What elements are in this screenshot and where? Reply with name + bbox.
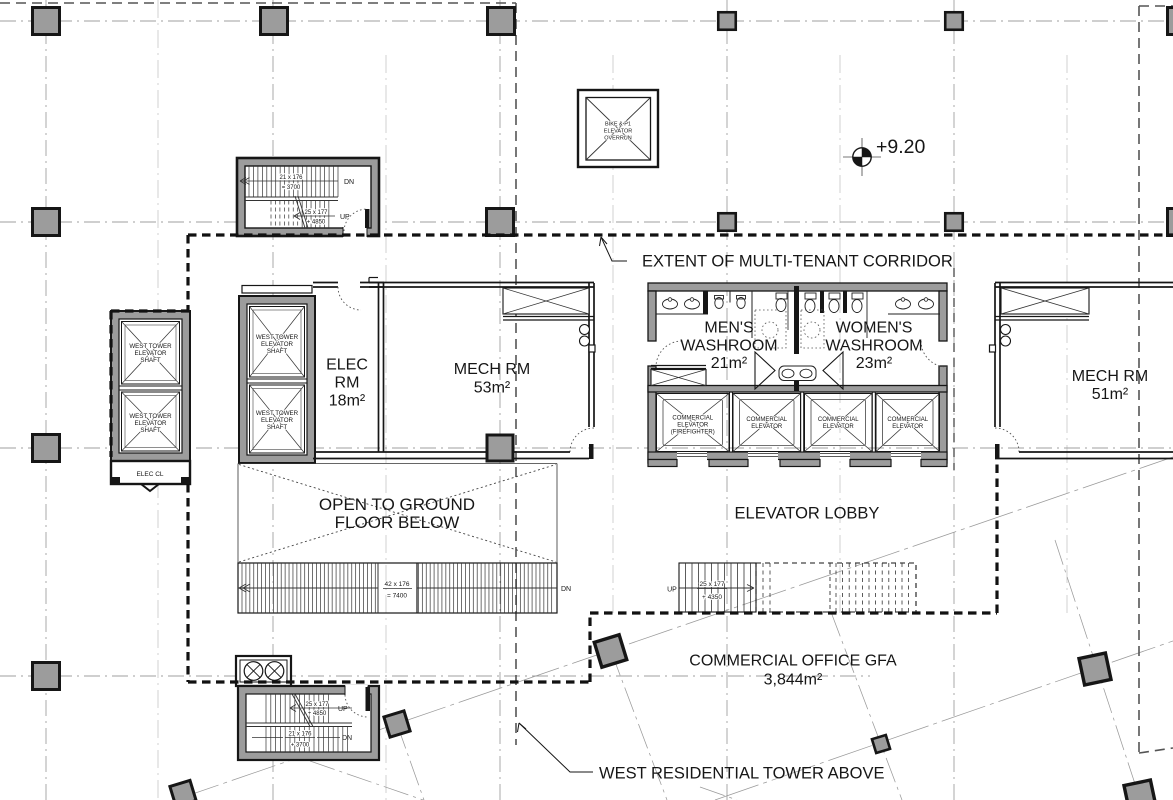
svg-text:ELEVATOR: ELEVATOR: [135, 350, 168, 357]
svg-text:COMMERCIAL: COMMERCIAL: [818, 417, 859, 423]
svg-text:SHAFT: SHAFT: [267, 348, 288, 355]
svg-text:53m²: 53m²: [474, 380, 511, 397]
svg-text:EXTENT OF MULTI-TENANT CORRIDO: EXTENT OF MULTI-TENANT CORRIDOR: [642, 253, 953, 271]
svg-text:WASHROOM: WASHROOM: [825, 338, 922, 355]
svg-text:DN: DN: [344, 179, 354, 186]
svg-text:SHAFT: SHAFT: [140, 427, 161, 434]
svg-text:COMMERCIAL OFFICE GFA: COMMERCIAL OFFICE GFA: [689, 653, 897, 670]
svg-text:= 7400: = 7400: [387, 593, 407, 600]
svg-text:ELEVATOR: ELEVATOR: [677, 423, 709, 429]
svg-text:WOMEN'S: WOMEN'S: [836, 320, 913, 337]
svg-text:WEST TOWER: WEST TOWER: [256, 334, 299, 341]
svg-text:WEST TOWER: WEST TOWER: [129, 343, 172, 350]
svg-text:BIKE & P1: BIKE & P1: [605, 122, 631, 128]
svg-text:FLOOR BELOW: FLOOR BELOW: [335, 513, 460, 532]
svg-text:UP: UP: [338, 706, 348, 713]
svg-text:25 x 177: 25 x 177: [304, 210, 328, 216]
svg-text:+ 4350: + 4350: [702, 594, 722, 601]
svg-text:= 3700: = 3700: [282, 185, 301, 191]
svg-text:ELEVATOR: ELEVATOR: [261, 417, 294, 424]
svg-text:SHAFT: SHAFT: [267, 424, 288, 431]
svg-text:21 x 176: 21 x 176: [279, 175, 303, 181]
svg-text:UP: UP: [340, 214, 350, 221]
svg-text:23m²: 23m²: [856, 355, 893, 372]
svg-text:MEN'S: MEN'S: [704, 320, 753, 337]
svg-text:WASHROOM: WASHROOM: [680, 338, 777, 355]
svg-text:25 x 177: 25 x 177: [700, 581, 725, 588]
svg-text:ELEVATOR: ELEVATOR: [135, 420, 168, 427]
svg-text:18m²: 18m²: [329, 393, 366, 410]
svg-text:RM: RM: [335, 375, 360, 392]
svg-text:ELEVATOR: ELEVATOR: [823, 424, 855, 430]
svg-text:WEST RESIDENTIAL TOWER ABOVE: WEST RESIDENTIAL TOWER ABOVE: [599, 765, 884, 783]
svg-text:MECH RM: MECH RM: [1072, 368, 1148, 385]
svg-text:21m²: 21m²: [711, 355, 748, 372]
svg-text:MECH RM: MECH RM: [454, 361, 530, 378]
svg-text:ELEVATOR: ELEVATOR: [261, 341, 294, 348]
svg-text:COMMERCIAL: COMMERCIAL: [887, 417, 928, 423]
svg-text:ELEC CL: ELEC CL: [136, 471, 163, 478]
svg-text:ELEVATOR: ELEVATOR: [604, 129, 632, 135]
svg-text:WEST TOWER: WEST TOWER: [256, 410, 299, 417]
svg-text:ELEVATOR: ELEVATOR: [892, 424, 924, 430]
svg-text:42 x 176: 42 x 176: [385, 581, 410, 588]
svg-text:51m²: 51m²: [1092, 386, 1129, 403]
svg-text:SHAFT: SHAFT: [140, 357, 161, 364]
svg-text:3,844m²: 3,844m²: [764, 672, 823, 689]
svg-text:21 x 176: 21 x 176: [288, 732, 312, 738]
svg-text:DN: DN: [561, 586, 571, 593]
svg-text:ELEVATOR: ELEVATOR: [751, 424, 783, 430]
svg-text:+ 4850: + 4850: [308, 711, 327, 717]
svg-text:OPEN TO GROUND: OPEN TO GROUND: [319, 495, 475, 514]
svg-text:UP: UP: [667, 587, 677, 594]
svg-text:WEST TOWER: WEST TOWER: [129, 413, 172, 420]
svg-text:+ 4850: + 4850: [307, 220, 326, 226]
svg-text:DN: DN: [342, 735, 352, 742]
svg-text:COMMERCIAL: COMMERCIAL: [746, 417, 787, 423]
svg-text:OVERRUN: OVERRUN: [604, 136, 632, 142]
svg-text:(FIREFIGHTER): (FIREFIGHTER): [671, 430, 715, 436]
svg-text:+ 3700: + 3700: [291, 743, 310, 749]
svg-text:+9.20: +9.20: [876, 136, 925, 158]
svg-text:COMMERCIAL: COMMERCIAL: [672, 416, 713, 422]
svg-text:25 x 177: 25 x 177: [305, 702, 329, 708]
svg-text:ELEC: ELEC: [326, 357, 368, 374]
svg-text:ELEVATOR LOBBY: ELEVATOR LOBBY: [735, 505, 880, 523]
